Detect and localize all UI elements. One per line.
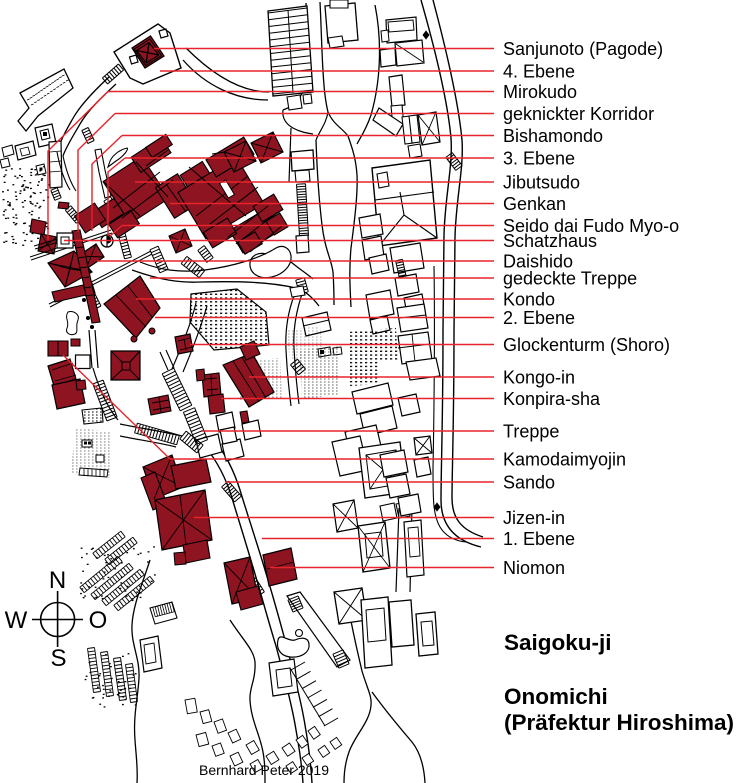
svg-text:Konpira-sha: Konpira-sha xyxy=(503,389,601,409)
svg-text:Kondo: Kondo xyxy=(503,290,555,310)
svg-text:N: N xyxy=(49,567,66,594)
svg-text:geknickter Korridor: geknickter Korridor xyxy=(503,104,654,124)
svg-text:3. Ebene: 3. Ebene xyxy=(503,149,575,169)
svg-text:O: O xyxy=(89,607,108,634)
svg-text:Sanjunoto (Pagode): Sanjunoto (Pagode) xyxy=(503,39,663,59)
svg-text:Schatzhaus: Schatzhaus xyxy=(503,231,597,251)
svg-text:4. Ebene: 4. Ebene xyxy=(503,62,575,82)
svg-text:W: W xyxy=(5,607,28,634)
svg-text:Niomon: Niomon xyxy=(503,558,565,578)
svg-text:Bishamondo: Bishamondo xyxy=(503,126,603,146)
svg-text:Kamodaimyojin: Kamodaimyojin xyxy=(503,450,626,470)
svg-text:(Präfektur Hiroshima): (Präfektur Hiroshima) xyxy=(504,710,734,735)
svg-text:2. Ebene: 2. Ebene xyxy=(503,308,575,328)
svg-text:Kongo-in: Kongo-in xyxy=(503,368,575,388)
svg-text:Mirokudo: Mirokudo xyxy=(503,82,577,102)
svg-text:Sando: Sando xyxy=(503,473,555,493)
svg-text:Genkan: Genkan xyxy=(503,194,566,214)
svg-text:Glockenturm (Shoro): Glockenturm (Shoro) xyxy=(503,335,670,355)
svg-text:Saigoku-ji: Saigoku-ji xyxy=(504,630,612,655)
svg-text:gedeckte Treppe: gedeckte Treppe xyxy=(503,269,637,289)
svg-text:Bernhard Peter 2019: Bernhard Peter 2019 xyxy=(199,762,329,778)
svg-text:1. Ebene: 1. Ebene xyxy=(503,529,575,549)
svg-text:Jizen-in: Jizen-in xyxy=(503,508,565,528)
svg-text:S: S xyxy=(50,645,66,672)
svg-text:Jibutsudo: Jibutsudo xyxy=(503,173,580,193)
svg-text:Treppe: Treppe xyxy=(503,422,559,442)
svg-text:Onomichi: Onomichi xyxy=(504,684,608,709)
